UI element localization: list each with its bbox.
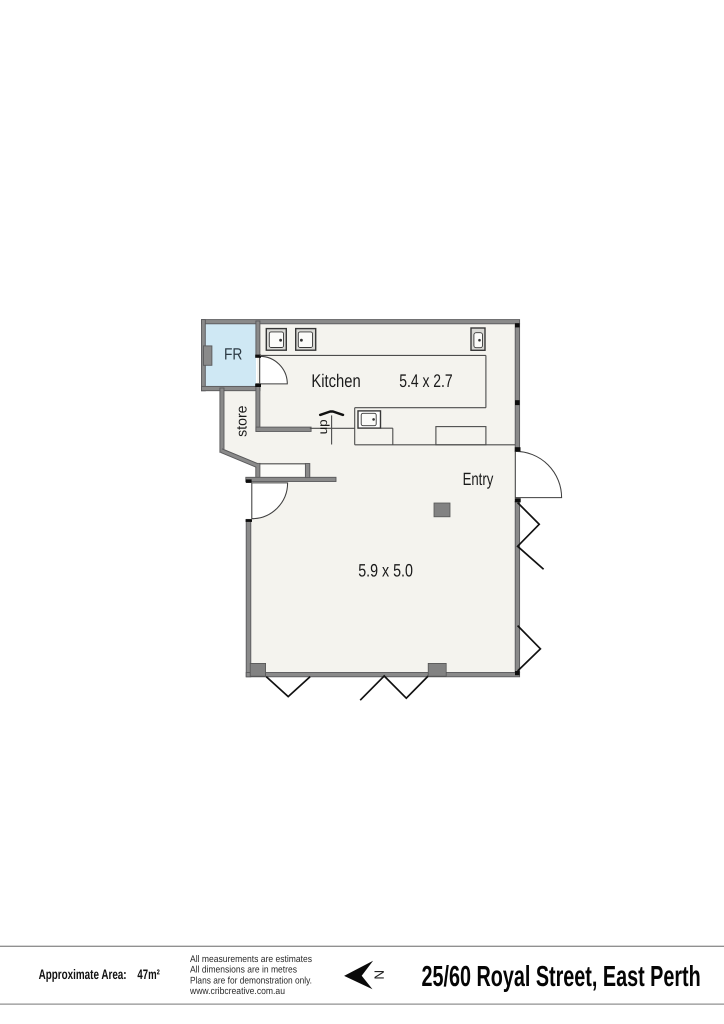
svg-text:Entry: Entry bbox=[463, 469, 494, 489]
svg-text:Approximate Area:: Approximate Area: bbox=[39, 967, 127, 982]
svg-text:All dimensions are in metres: All dimensions are in metres bbox=[190, 965, 297, 976]
svg-text:store: store bbox=[234, 406, 250, 437]
svg-text:All measurements are estimates: All measurements are estimates bbox=[190, 954, 312, 965]
svg-text:5.9 x 5.0: 5.9 x 5.0 bbox=[358, 560, 413, 580]
svg-text:Plans are for demonstration on: Plans are for demonstration only. bbox=[190, 975, 312, 986]
svg-text:47m²: 47m² bbox=[137, 967, 160, 982]
svg-text:FR: FR bbox=[224, 346, 242, 364]
svg-text:N: N bbox=[371, 970, 386, 980]
svg-text:www.cribcreative.com.au: www.cribcreative.com.au bbox=[189, 986, 285, 997]
svg-text:up: up bbox=[316, 419, 330, 434]
svg-text:25/60 Royal Street, East Perth: 25/60 Royal Street, East Perth bbox=[422, 961, 701, 993]
svg-text:Kitchen: Kitchen bbox=[311, 370, 360, 391]
svg-text:5.4 x 2.7: 5.4 x 2.7 bbox=[399, 370, 453, 391]
